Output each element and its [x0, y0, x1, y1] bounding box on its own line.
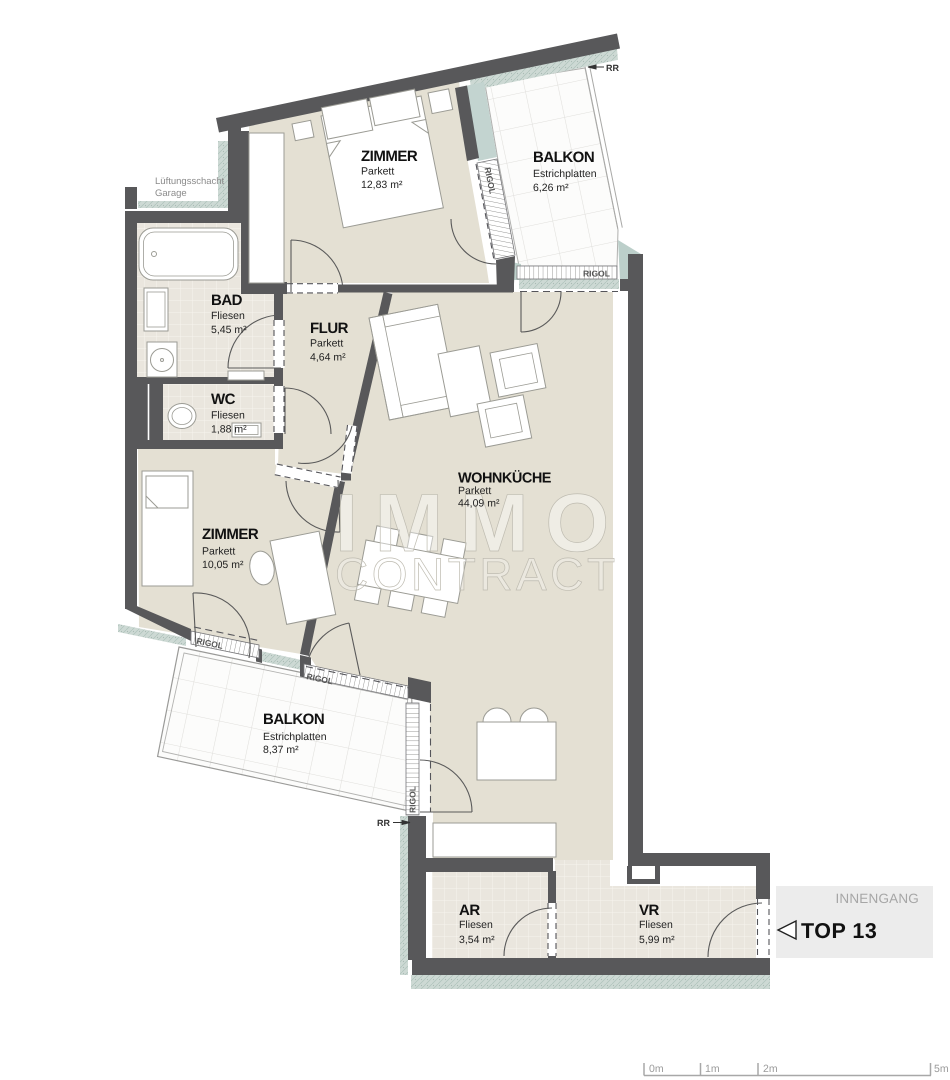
- svg-text:RR: RR: [606, 63, 619, 73]
- svg-text:BALKON: BALKON: [533, 149, 594, 166]
- svg-text:WOHNKÜCHE: WOHNKÜCHE: [458, 470, 552, 487]
- svg-text:5,99 m²: 5,99 m²: [639, 934, 675, 946]
- svg-text:5,45 m²: 5,45 m²: [211, 324, 247, 336]
- svg-text:Lüftungsschacht: Lüftungsschacht: [155, 176, 225, 187]
- svg-text:BALKON: BALKON: [263, 711, 324, 728]
- svg-text:Fliesen: Fliesen: [211, 310, 245, 322]
- svg-text:1,88 m²: 1,88 m²: [211, 424, 247, 436]
- svg-text:RIGOL: RIGOL: [583, 269, 610, 279]
- svg-text:FLUR: FLUR: [310, 320, 349, 337]
- svg-text:Parkett: Parkett: [310, 338, 343, 350]
- svg-text:Estrichplatten: Estrichplatten: [533, 168, 597, 180]
- svg-text:2m: 2m: [763, 1063, 778, 1075]
- svg-text:5m: 5m: [934, 1063, 949, 1075]
- svg-text:RR: RR: [377, 818, 390, 828]
- svg-text:4,64 m²: 4,64 m²: [310, 352, 346, 364]
- svg-text:Fliesen: Fliesen: [459, 919, 493, 931]
- svg-text:12,83 m²: 12,83 m²: [361, 179, 403, 191]
- svg-text:3,54 m²: 3,54 m²: [459, 934, 495, 946]
- svg-text:ZIMMER: ZIMMER: [202, 526, 259, 543]
- svg-text:44,09 m²: 44,09 m²: [458, 498, 500, 510]
- svg-text:CONTRACT: CONTRACT: [335, 548, 619, 600]
- svg-text:WC: WC: [211, 391, 236, 408]
- svg-text:RIGOL: RIGOL: [408, 786, 418, 813]
- svg-text:Parkett: Parkett: [202, 546, 235, 558]
- svg-text:INNENGANG: INNENGANG: [835, 891, 919, 906]
- svg-text:8,37 m²: 8,37 m²: [263, 744, 299, 756]
- svg-text:VR: VR: [639, 902, 660, 919]
- svg-text:Parkett: Parkett: [458, 485, 491, 497]
- svg-text:Estrichplatten: Estrichplatten: [263, 731, 327, 743]
- svg-text:10,05 m²: 10,05 m²: [202, 559, 244, 571]
- svg-text:AR: AR: [459, 902, 480, 919]
- svg-text:6,26 m²: 6,26 m²: [533, 182, 569, 194]
- svg-text:Fliesen: Fliesen: [639, 919, 673, 931]
- svg-text:ZIMMER: ZIMMER: [361, 148, 418, 165]
- svg-text:BAD: BAD: [211, 292, 243, 309]
- svg-text:Fliesen: Fliesen: [211, 410, 245, 422]
- svg-text:TOP 13: TOP 13: [801, 919, 877, 943]
- svg-text:Parkett: Parkett: [361, 166, 394, 178]
- svg-text:1m: 1m: [705, 1063, 720, 1075]
- svg-text:Garage: Garage: [155, 188, 187, 199]
- svg-text:0m: 0m: [649, 1063, 664, 1075]
